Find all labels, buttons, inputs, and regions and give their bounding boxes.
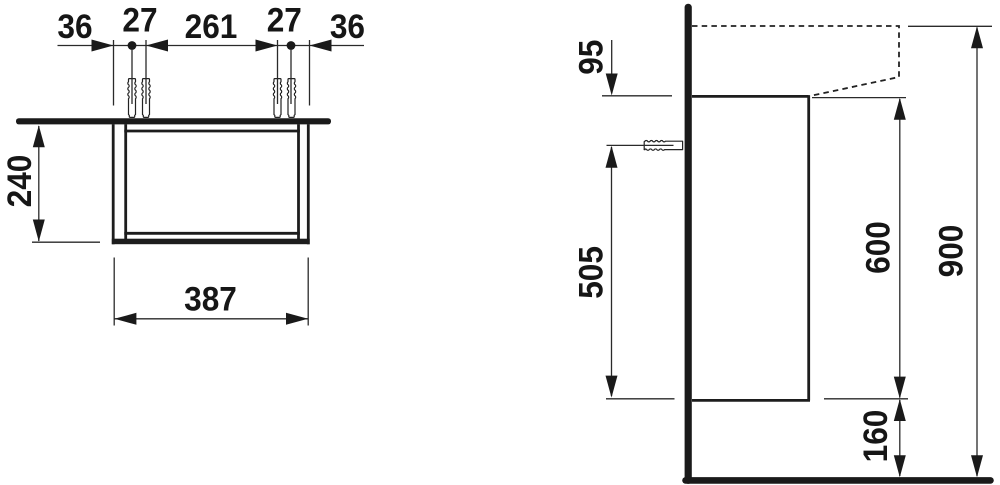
svg-text:387: 387	[184, 279, 237, 317]
svg-text:600: 600	[858, 221, 896, 274]
svg-text:95: 95	[571, 40, 609, 75]
svg-text:36: 36	[330, 7, 365, 45]
svg-text:160: 160	[856, 410, 894, 463]
svg-text:261: 261	[185, 7, 238, 45]
svg-text:27: 27	[267, 0, 302, 38]
svg-text:36: 36	[57, 7, 92, 45]
svg-text:505: 505	[571, 246, 609, 299]
svg-text:240: 240	[0, 155, 38, 208]
svg-text:900: 900	[931, 225, 969, 278]
svg-text:27: 27	[122, 0, 157, 38]
